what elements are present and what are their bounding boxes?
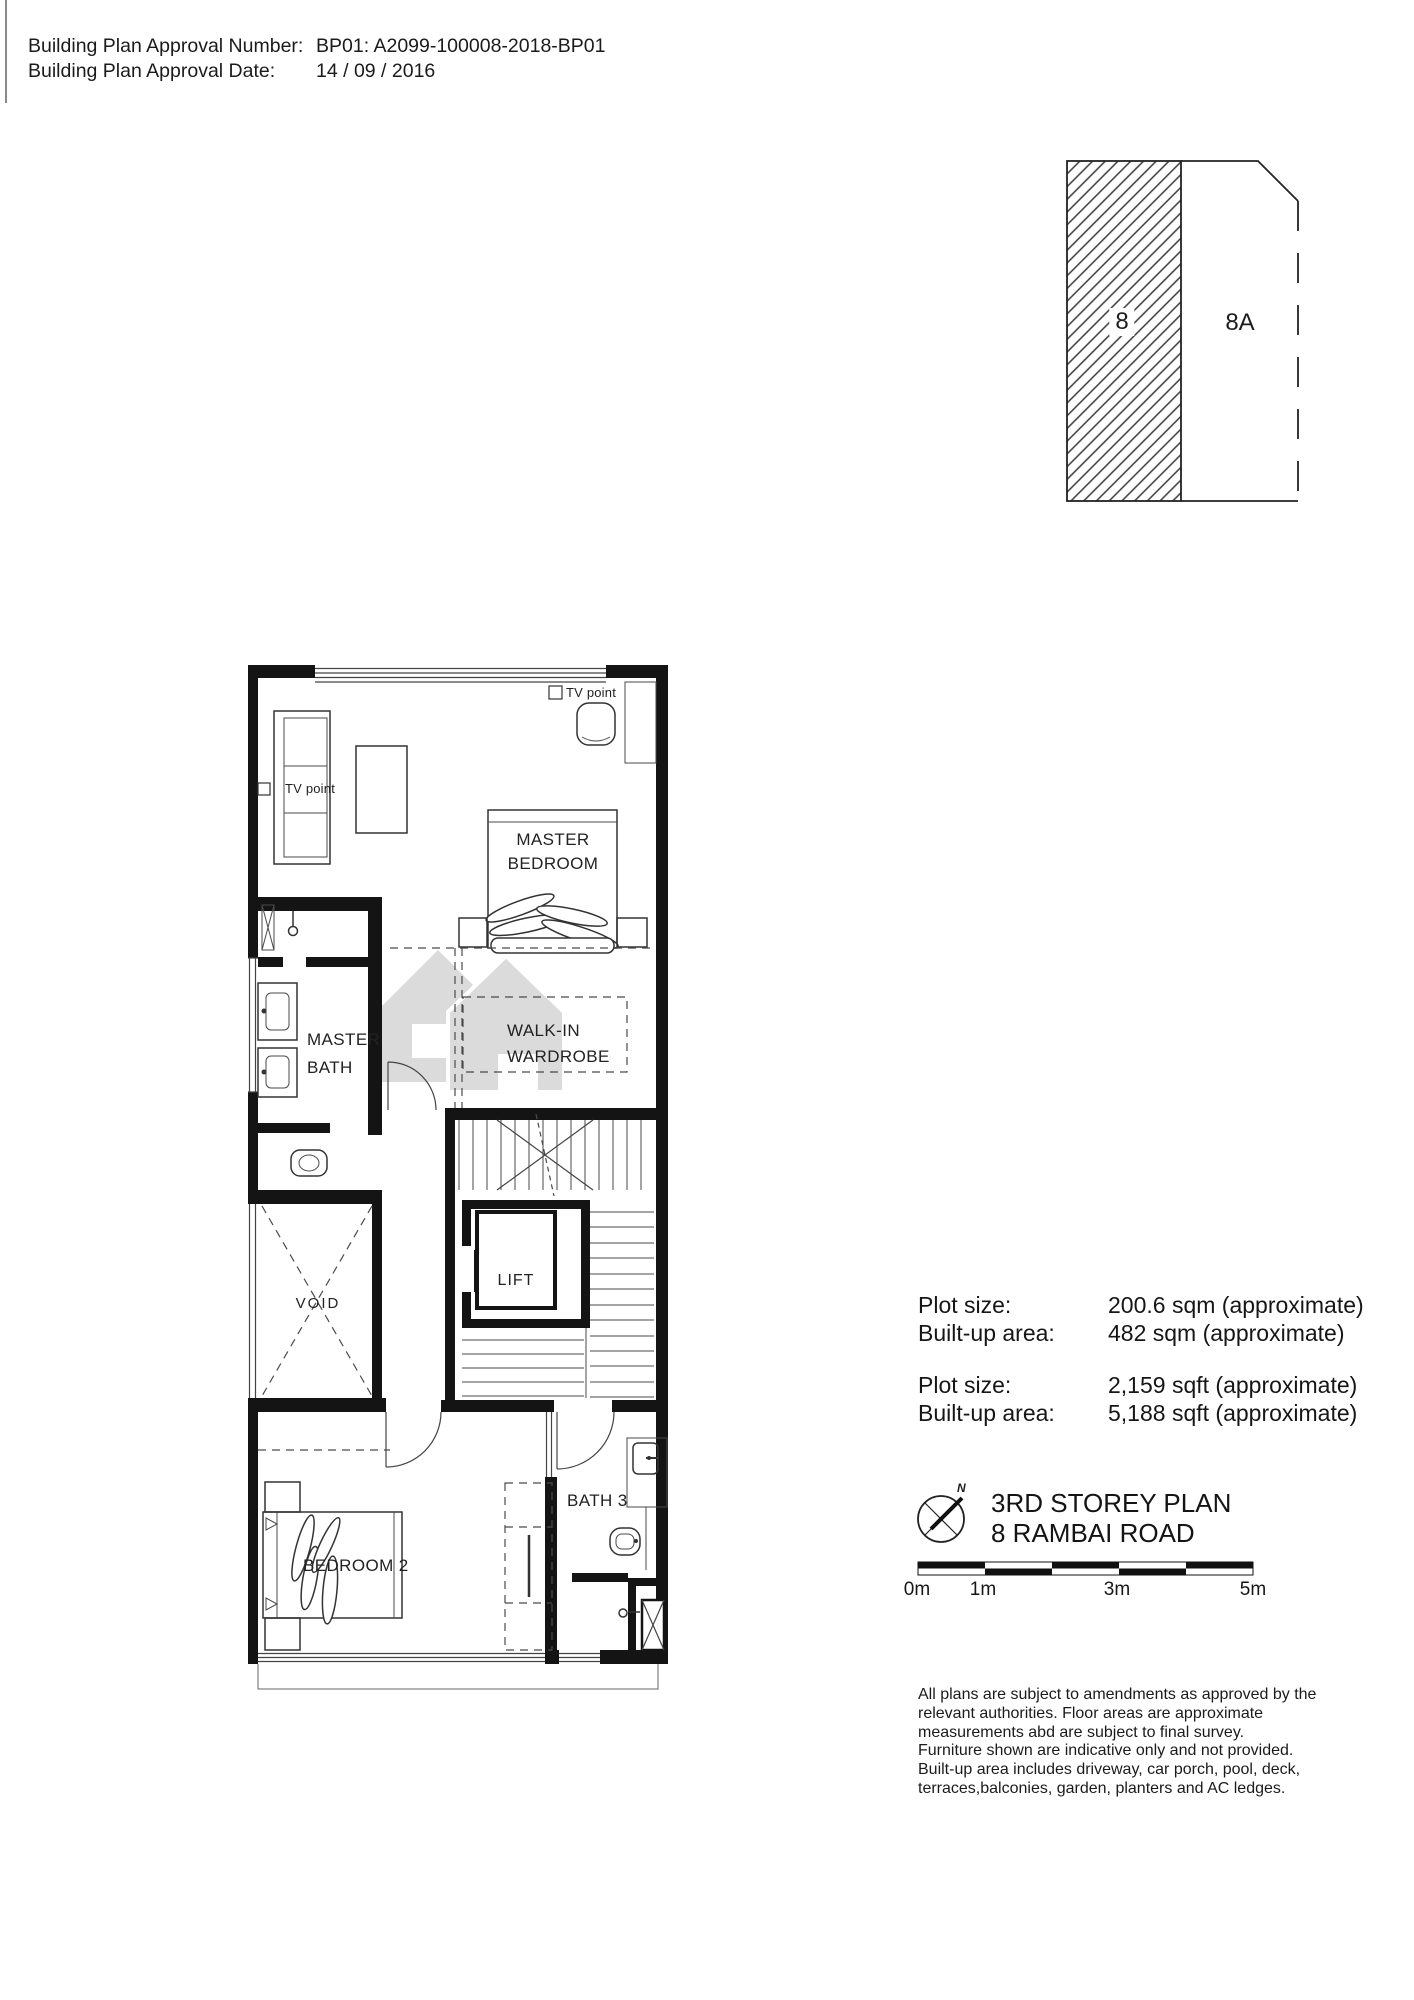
floor-plan-page: Building Plan Approval Number: BP01: A20… [0, 0, 1414, 2000]
lot-8a-label: 8A [1225, 309, 1254, 337]
scale-bar [918, 1562, 1253, 1575]
plot-size-sqft-row: Plot size: 2,159 sqft (approximate) [918, 1371, 1364, 1399]
built-up-sqft-row: Built-up area: 5,188 sqft (approximate) [918, 1399, 1364, 1427]
bath-3-label: BATH 3 [567, 1491, 628, 1511]
nightstand [265, 1482, 300, 1512]
area-info: Plot size: 200.6 sqm (approximate) Built… [918, 1291, 1364, 1427]
compass-n-label: N [957, 1481, 966, 1495]
tv-outlet-icon [258, 783, 270, 795]
built-up-sqm-row: Built-up area: 482 sqm (approximate) [918, 1319, 1364, 1347]
master-bedroom-label: MASTER BEDROOM [508, 828, 599, 876]
lift-label: LIFT [498, 1272, 535, 1290]
side-table [617, 918, 647, 947]
tv-point-label: TV point [285, 781, 335, 796]
scale-tick-0m: 0m [904, 1579, 930, 1601]
nightstand [265, 1618, 300, 1650]
compass-north-icon [918, 1496, 964, 1542]
void-label: VOID [296, 1295, 341, 1312]
walk-in-wardrobe-label: WALK-IN WARDROBE [507, 1018, 610, 1070]
approval-number-value: BP01: A2099-100008-2018-BP01 [316, 34, 605, 59]
page-edge-line [5, 0, 7, 103]
scale-tick-1m: 1m [970, 1579, 996, 1601]
approval-header: Building Plan Approval Number: BP01: A20… [28, 34, 605, 83]
bedroom2-furniture [258, 1450, 552, 1650]
lot-8-label: 8 [1109, 308, 1134, 336]
plan-title: 3RD STOREY PLAN [991, 1489, 1231, 1519]
bedroom-2-label: BEDROOM 2 [303, 1556, 409, 1576]
lift-cab [477, 1212, 555, 1308]
tv-point-label: TV point [566, 685, 616, 700]
armchair [577, 703, 615, 745]
disclaimer-text: All plans are subject to amendments as a… [918, 1686, 1316, 1799]
title-block: 3RD STOREY PLAN 8 RAMBAI ROAD [991, 1489, 1231, 1548]
coffee-table [356, 746, 407, 833]
tv-outlet-icon [549, 686, 562, 699]
approval-date-label: Building Plan Approval Date: [28, 59, 316, 84]
master-bath-label: MASTER BATH [307, 1026, 380, 1082]
toilet [291, 1150, 327, 1176]
side-table [459, 918, 487, 947]
lift-shaft [462, 1200, 590, 1328]
lot-key-diagram [1067, 161, 1298, 501]
plot-size-sqm-row: Plot size: 200.6 sqm (approximate) [918, 1291, 1364, 1319]
approval-number-label: Building Plan Approval Number: [28, 34, 316, 59]
scale-tick-5m: 5m [1240, 1579, 1266, 1601]
approval-date-value: 14 / 09 / 2016 [316, 59, 605, 84]
scale-tick-3m: 3m [1104, 1579, 1130, 1601]
plan-address: 8 RAMBAI ROAD [991, 1519, 1231, 1549]
plan-walls [248, 665, 668, 1664]
